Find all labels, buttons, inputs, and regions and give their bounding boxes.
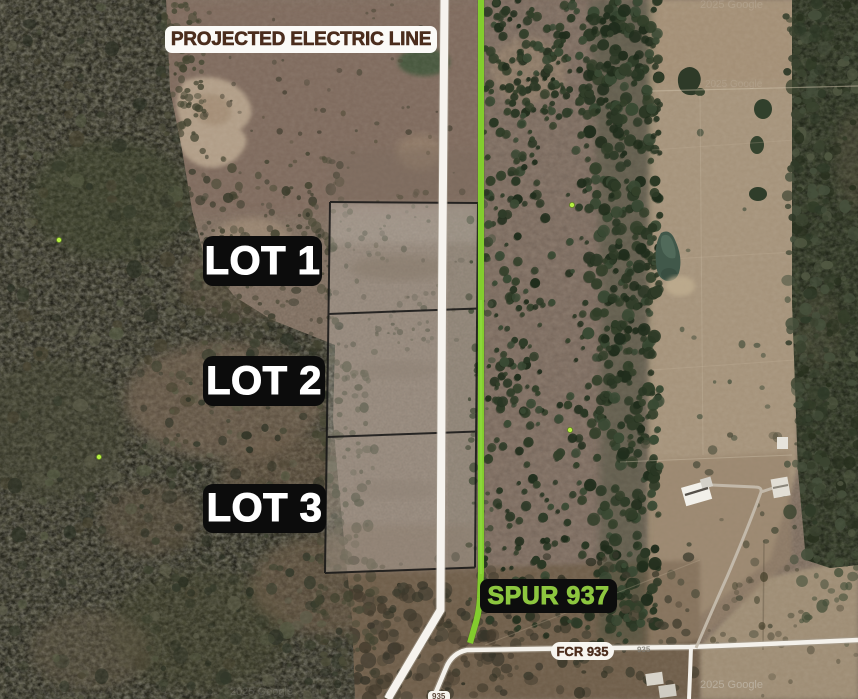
svg-text:2025 Google: 2025 Google [705,79,763,90]
svg-text:935: 935 [432,692,446,699]
svg-text:2025 Google: 2025 Google [230,686,293,698]
svg-text:2025 Google: 2025 Google [700,679,763,691]
svg-text:2025 Google: 2025 Google [700,0,763,11]
svg-text:935: 935 [637,645,651,654]
